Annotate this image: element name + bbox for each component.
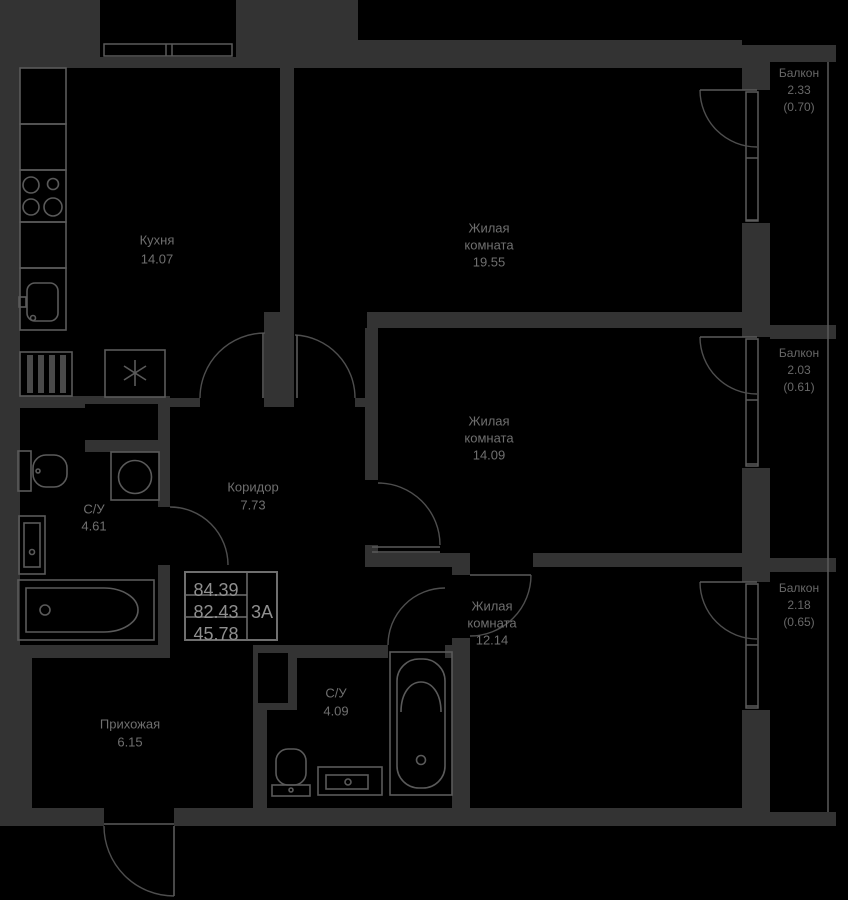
balcony2-glazing	[746, 339, 758, 466]
area-info-box: 84.39 82.43 45.78 3А	[185, 572, 277, 644]
kitchen-area: 14.07	[141, 252, 174, 267]
living3-area: 12.14	[476, 633, 509, 648]
hallway-label: Прихожая	[100, 717, 160, 732]
living-area-value: 45.78	[193, 624, 238, 644]
balcony3-label: Балкон	[779, 581, 819, 595]
balcony1-label: Балкон	[779, 66, 819, 80]
total-area-value: 84.39	[193, 580, 238, 600]
floor-plan-page: 84.39 82.43 45.78 3А Кухня 14.07 Жилая к…	[0, 0, 848, 900]
living2-label-line2: комната	[464, 431, 514, 446]
living3-label-line2: комната	[467, 616, 517, 631]
balcony3-area: 2.18	[787, 598, 811, 612]
corridor-label: Коридор	[227, 480, 278, 495]
hallway-area: 6.15	[117, 735, 142, 750]
corridor-area: 7.73	[240, 498, 265, 513]
balcony3-reduced-area: (0.65)	[783, 615, 814, 629]
living1-area: 19.55	[473, 255, 506, 270]
bathroom1-area: 4.61	[81, 519, 106, 534]
area-without-balconies-value: 82.43	[193, 602, 238, 622]
balcony1-glazing	[746, 92, 758, 221]
bathroom2-area: 4.09	[323, 704, 348, 719]
living2-area: 14.09	[473, 448, 506, 463]
balcony1-reduced-area: (0.70)	[783, 100, 814, 114]
living3-label-line1: Жилая	[471, 599, 512, 614]
bathroom2-label: С/У	[325, 686, 347, 701]
balcony2-area: 2.03	[787, 363, 811, 377]
bathroom1-label: С/У	[83, 502, 105, 517]
balcony2-reduced-area: (0.61)	[783, 380, 814, 394]
balcony1-area: 2.33	[787, 83, 811, 97]
living1-label-line1: Жилая	[468, 221, 509, 236]
floor-plan-drawing: 84.39 82.43 45.78 3А Кухня 14.07 Жилая к…	[0, 0, 848, 900]
living2-label-line1: Жилая	[468, 414, 509, 429]
balcony3-glazing	[746, 584, 758, 708]
flat-type-value: 3А	[251, 602, 273, 622]
living1-label-line2: комната	[464, 238, 514, 253]
duct-niche	[258, 653, 288, 703]
kitchen-label: Кухня	[140, 233, 175, 248]
kitchen-bay-window	[104, 44, 232, 56]
balcony2-label: Балкон	[779, 346, 819, 360]
